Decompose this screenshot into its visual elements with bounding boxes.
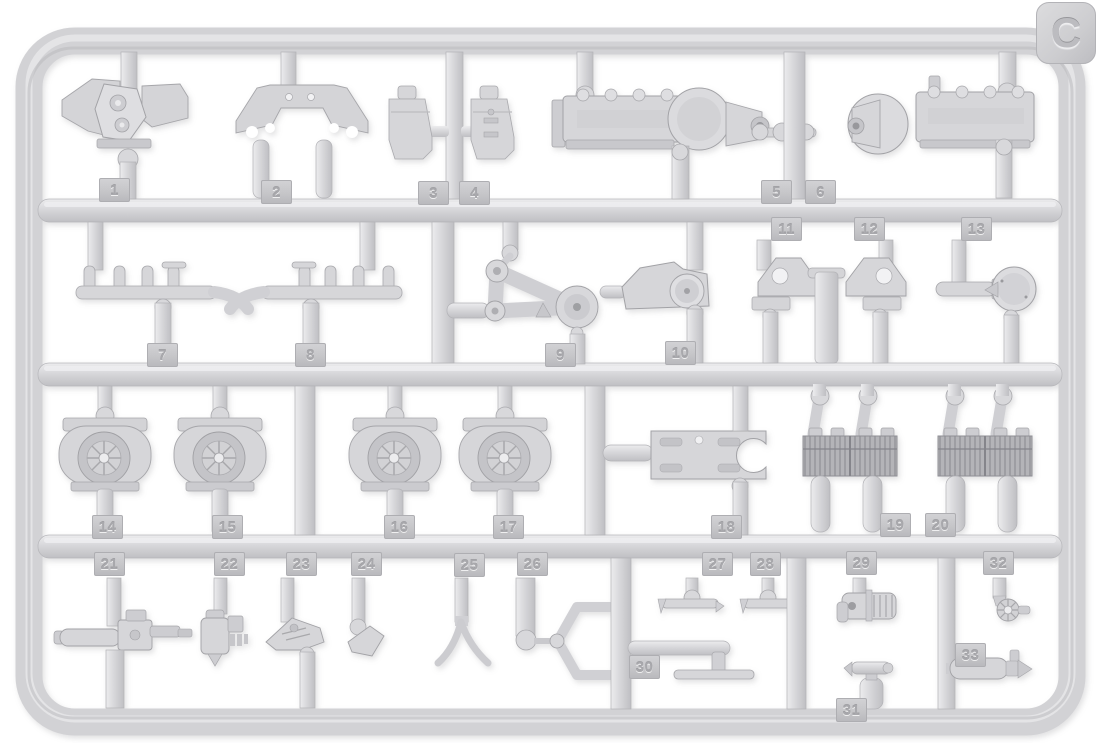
- part-tab-1: 1: [99, 178, 130, 202]
- runner-vertical-row3-center: [585, 386, 605, 535]
- runner-vertical-row4-right: [787, 558, 806, 709]
- part-tab-31: 31: [836, 698, 867, 722]
- part-tab-20: 20: [925, 513, 956, 537]
- part-22-pump-body: [201, 578, 248, 666]
- part-tab-33: 33: [955, 643, 986, 667]
- part-tab-22: 22: [214, 552, 245, 576]
- part-tab-28: 28: [750, 552, 781, 576]
- part-13-fan-drive: [936, 240, 1036, 363]
- part-11-12-engine-mounts: [752, 240, 906, 363]
- runner-vertical-row4-center: [611, 558, 631, 709]
- runner-vertical-row3-left: [295, 386, 315, 535]
- part-5-engine-half: [552, 52, 769, 199]
- part-8-exhaust-manifold: [230, 222, 402, 363]
- part-tab-17: 17: [493, 515, 524, 539]
- part-tab-10: 10: [665, 341, 696, 365]
- part-tab-19: 19: [880, 513, 911, 537]
- part-tab-27: 27: [702, 552, 733, 576]
- part-tab-4: 4: [459, 181, 490, 205]
- part-tab-11: 11: [771, 217, 802, 241]
- part-7-exhaust-manifold: [76, 222, 248, 363]
- part-tab-23: 23: [286, 552, 317, 576]
- part-tab-6: 6: [805, 180, 836, 204]
- part-4-air-cleaner: [471, 86, 514, 159]
- part-tab-25: 25: [454, 553, 485, 577]
- part-2-bracket: [236, 52, 368, 198]
- part-21-carburetor: [54, 578, 192, 708]
- part-tab-15: 15: [212, 515, 243, 539]
- part-16-blower: [349, 386, 441, 535]
- part-32-gear-wheel: [993, 578, 1030, 621]
- part-25-fork: [438, 578, 488, 663]
- part-tab-16: 16: [384, 515, 415, 539]
- part-tab-32: 32: [983, 551, 1014, 575]
- part-tab-14: 14: [92, 515, 123, 539]
- part-tab-24: 24: [351, 552, 382, 576]
- sprue-photo: 1234567891011121314151617181920212223242…: [0, 0, 1100, 743]
- part-23-small-bracket: [266, 578, 324, 708]
- part-3-air-cleaner: [389, 86, 432, 159]
- part-tab-9: 9: [545, 343, 576, 367]
- part-14-blower: [59, 386, 151, 535]
- runner-vertical-row2: [432, 222, 489, 363]
- part-20-radiator-core: [938, 384, 1032, 532]
- part-26-pipe-junction: [516, 578, 612, 675]
- part-tab-30: 30: [629, 655, 660, 679]
- part-19-radiator-core: [803, 384, 897, 532]
- part-24-angled-foot: [348, 578, 384, 656]
- part-tab-21: 21: [94, 552, 125, 576]
- part-15-blower: [174, 386, 266, 535]
- sprue-render: [0, 0, 1100, 743]
- sprue-runners: [38, 199, 1062, 558]
- part-tab-3: 3: [418, 181, 449, 205]
- part-9-belt-pulleys: [485, 222, 598, 364]
- part-17-blower: [459, 386, 551, 535]
- part-tab-12: 12: [854, 217, 885, 241]
- part-tab-5: 5: [761, 180, 792, 204]
- part-1-engine-mount-plate: [62, 52, 188, 199]
- part-18-mount-plate: [603, 386, 766, 535]
- part-tab-7: 7: [147, 343, 178, 367]
- part-29-pump-cylinder: [837, 578, 896, 622]
- part-tab-18: 18: [711, 515, 742, 539]
- part-6-engine-half: [848, 52, 1034, 198]
- runner-vertical-row1-left: [425, 52, 475, 199]
- runner-vertical-row4-far-right: [938, 558, 955, 709]
- part-tab-8: 8: [295, 343, 326, 367]
- runner-vertical-row1-center: [784, 52, 805, 199]
- part-tab-29: 29: [846, 551, 877, 575]
- sprue-letter: C: [1051, 9, 1081, 57]
- part-27-lever: [658, 578, 724, 613]
- part-tab-26: 26: [517, 552, 548, 576]
- sprue-letter-badge: C: [1036, 2, 1096, 64]
- part-tab-2: 2: [261, 180, 292, 204]
- part-tab-13: 13: [961, 217, 992, 241]
